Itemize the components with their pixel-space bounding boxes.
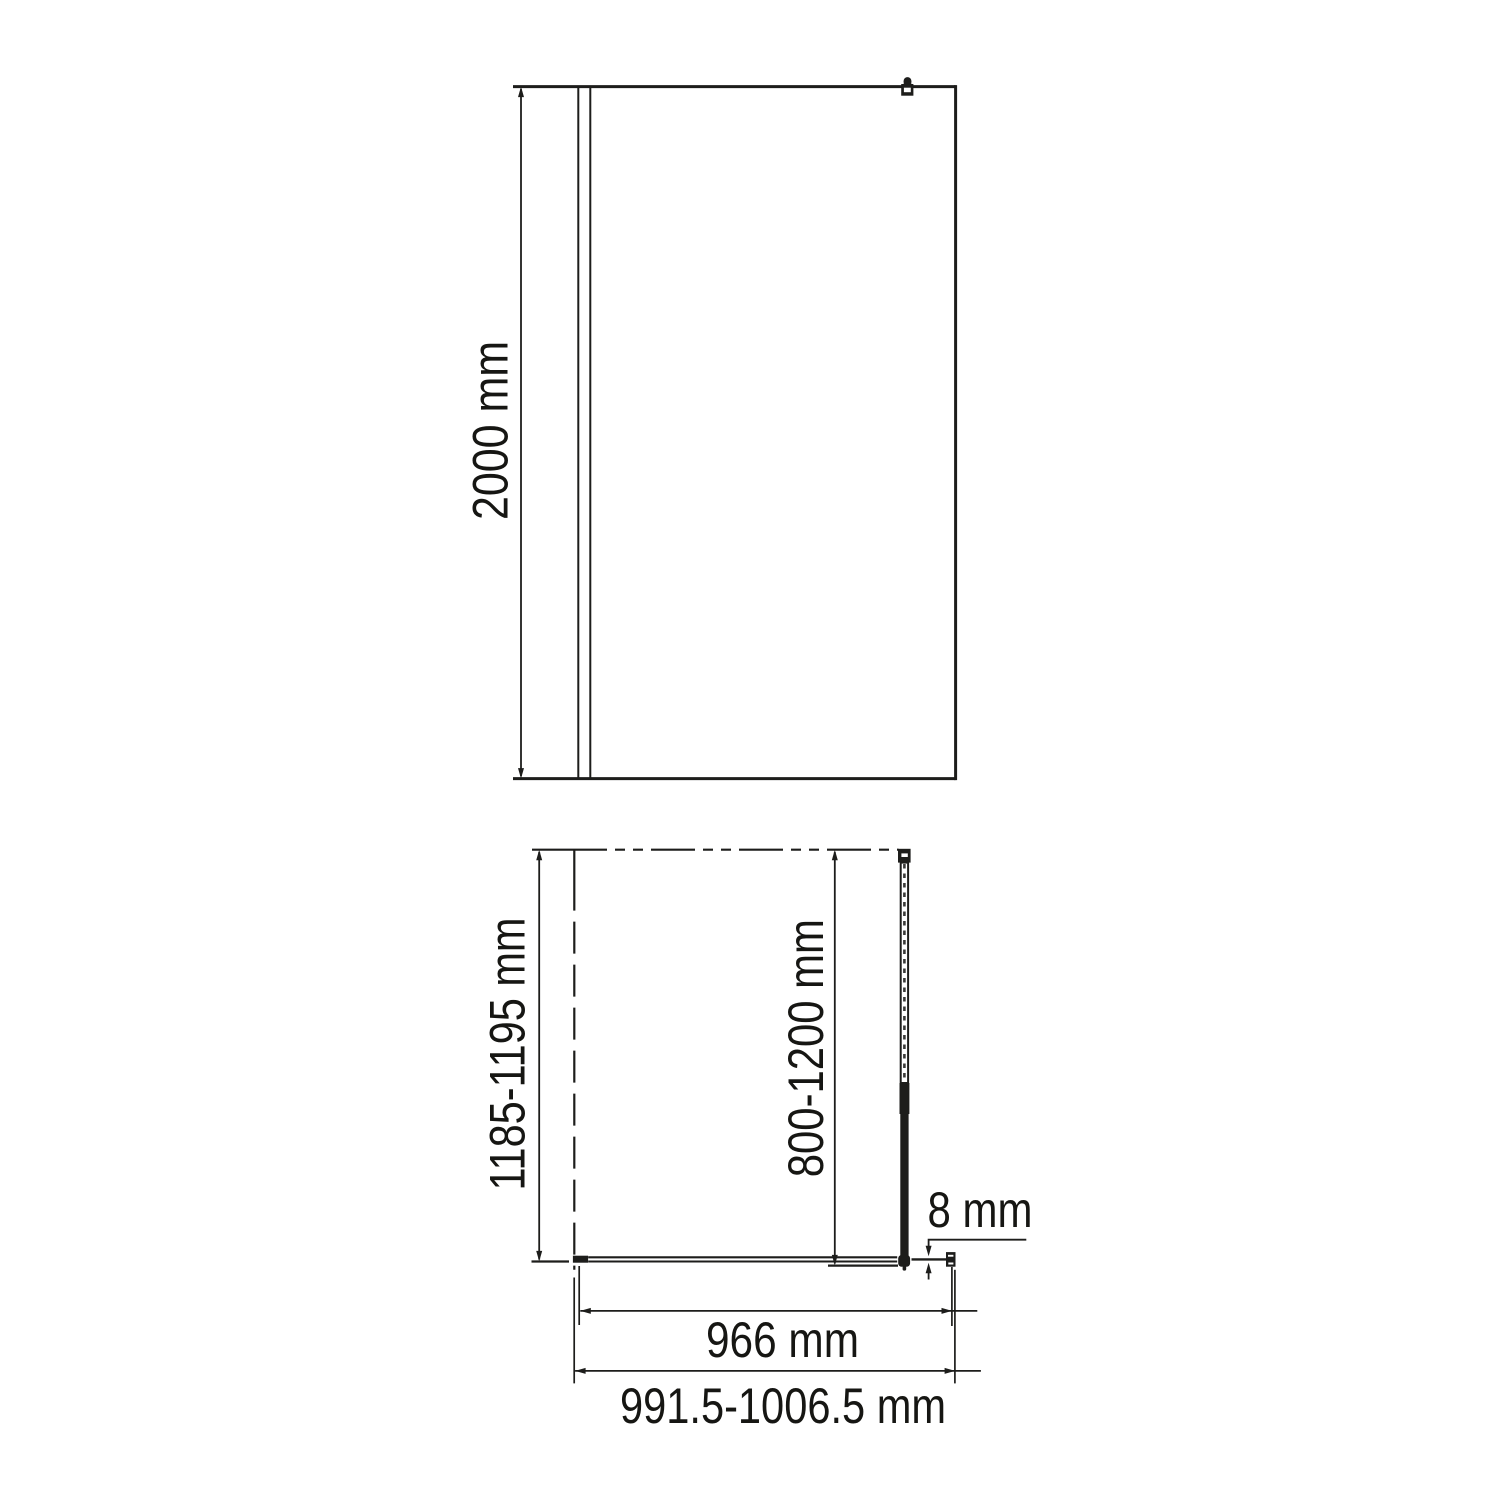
svg-text:8 mm: 8 mm — [928, 1182, 1033, 1238]
svg-text:2000 mm: 2000 mm — [462, 341, 518, 520]
svg-text:966 mm: 966 mm — [706, 1312, 859, 1368]
svg-text:991.5-1006.5 mm: 991.5-1006.5 mm — [620, 1378, 946, 1434]
svg-text:800-1200 mm: 800-1200 mm — [778, 919, 834, 1177]
svg-text:1185-1195 mm: 1185-1195 mm — [479, 918, 535, 1191]
